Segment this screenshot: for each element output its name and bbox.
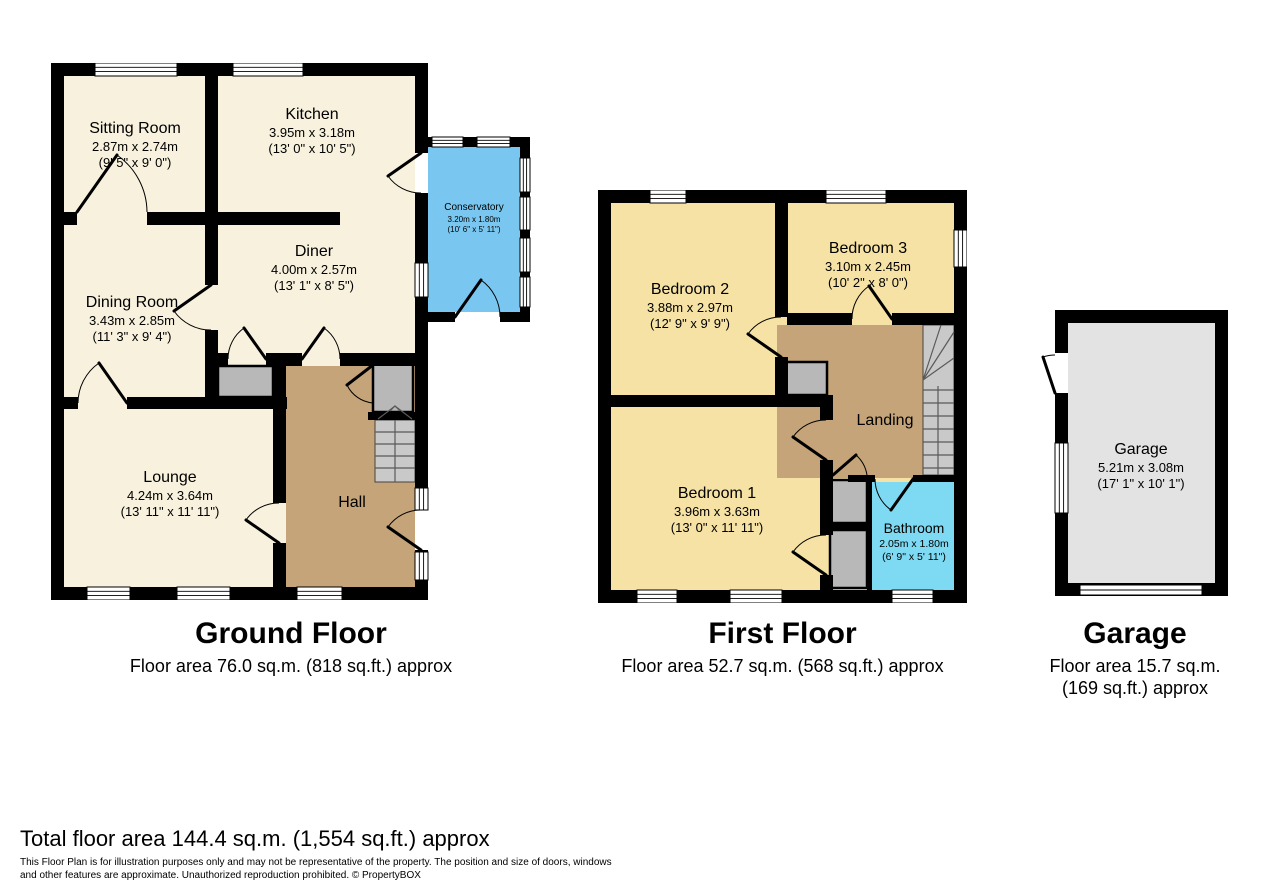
window: [415, 263, 428, 297]
room-dim-metric: 4.00m x 2.57m: [271, 262, 357, 278]
window: [95, 63, 177, 76]
window: [730, 590, 782, 603]
room-dim-imperial: (6' 9" x 5' 11"): [879, 551, 948, 564]
window: [637, 590, 677, 603]
ground-floor-plan: Sitting Room 2.87m x 2.74m (9' 5" x 9' 0…: [51, 63, 531, 600]
disclaimer-line-1: This Floor Plan is for illustration purp…: [20, 856, 612, 869]
room-dim-metric: 4.24m x 3.64m: [121, 488, 220, 504]
room-name: Garage: [1097, 440, 1184, 460]
garage-area-line2: (169 sq.ft.) approx: [1040, 676, 1230, 700]
window: [432, 137, 463, 147]
total-floor-area: Total floor area 144.4 sq.m. (1,554 sq.f…: [20, 826, 490, 852]
room-name: Bedroom 1: [671, 484, 763, 504]
landing-cupboard: [782, 362, 827, 395]
room-name: Lounge: [121, 468, 220, 488]
room-dim-metric: 2.05m x 1.80m: [879, 538, 948, 551]
cupboard-lower: [830, 530, 867, 588]
room-dim-imperial: (12' 9" x 9' 9"): [647, 316, 733, 332]
room-label-garage: Garage 5.21m x 3.08m (17' 1" x 10' 1"): [1097, 440, 1184, 493]
window: [233, 63, 303, 76]
room-name: Bedroom 2: [647, 280, 733, 300]
room-dim-imperial: (13' 0" x 10' 5"): [268, 141, 355, 157]
window: [87, 587, 130, 600]
window: [177, 587, 230, 600]
first-floor-area: Floor area 52.7 sq.m. (568 sq.ft.) appro…: [598, 654, 967, 678]
ground-floor-area: Floor area 76.0 sq.m. (818 sq.ft.) appro…: [51, 654, 531, 678]
room-name: Kitchen: [268, 105, 355, 125]
room-name: Hall: [338, 493, 366, 513]
room-dim-imperial: (10' 6" x 5' 11"): [444, 224, 503, 234]
room-dim-metric: 3.96m x 3.63m: [671, 504, 763, 520]
window: [520, 197, 530, 230]
cupboard-upper: [830, 480, 867, 523]
room-label-conservatory: Conservatory 3.20m x 1.80m (10' 6" x 5' …: [444, 202, 503, 235]
room-dim-imperial: (13' 1" x 8' 5"): [271, 278, 357, 294]
room-dim-imperial: (10' 2" x 8' 0"): [825, 275, 911, 291]
room-dim-imperial: (11' 3" x 9' 4"): [86, 329, 178, 345]
window: [477, 137, 510, 147]
room-label-bedroom-1: Bedroom 1 3.96m x 3.63m (13' 0" x 11' 11…: [671, 484, 763, 537]
ground-floor-title: Ground Floor: [51, 616, 531, 652]
room-name: Conservatory: [444, 202, 503, 215]
room-dim-metric: 3.43m x 2.85m: [86, 313, 178, 329]
room-label-bedroom-2: Bedroom 2 3.88m x 2.97m (12' 9" x 9' 9"): [647, 280, 733, 333]
window: [520, 158, 530, 192]
room-dim-imperial: (13' 11" x 11' 11"): [121, 504, 220, 520]
room-name: Landing: [857, 411, 914, 431]
window: [1055, 443, 1068, 513]
garage-area-line1: Floor area 15.7 sq.m.: [1040, 654, 1230, 678]
room-label-hall: Hall: [338, 493, 366, 513]
room-name: Bedroom 3: [825, 239, 911, 259]
room-dim-imperial: (17' 1" x 10' 1"): [1097, 476, 1184, 492]
window: [297, 587, 342, 600]
disclaimer: This Floor Plan is for illustration purp…: [20, 856, 612, 882]
hall-cupboard: [373, 360, 413, 412]
room-dim-imperial: (9' 5" x 9' 0"): [89, 155, 181, 171]
garage-caption: Garage Floor area 15.7 sq.m. (169 sq.ft.…: [1040, 616, 1230, 700]
pantry-cupboard: [218, 366, 273, 397]
ground-floor-caption: Ground Floor Floor area 76.0 sq.m. (818 …: [51, 616, 531, 678]
room-label-diner: Diner 4.00m x 2.57m (13' 1" x 8' 5"): [271, 242, 357, 295]
room-label-bathroom: Bathroom 2.05m x 1.80m (6' 9" x 5' 11"): [879, 520, 948, 564]
room-name: Bathroom: [879, 520, 948, 538]
room-dim-metric: 3.88m x 2.97m: [647, 300, 733, 316]
room-name: Sitting Room: [89, 119, 181, 139]
floor-plan-page: Sitting Room 2.87m x 2.74m (9' 5" x 9' 0…: [0, 0, 1280, 896]
room-name: Diner: [271, 242, 357, 262]
room-dim-metric: 5.21m x 3.08m: [1097, 460, 1184, 476]
window: [892, 590, 933, 603]
window: [650, 190, 686, 203]
room-dim-imperial: (13' 0" x 11' 11"): [671, 520, 763, 536]
room-label-lounge: Lounge 4.24m x 3.64m (13' 11" x 11' 11"): [121, 468, 220, 521]
first-floor-caption: First Floor Floor area 52.7 sq.m. (568 s…: [598, 616, 967, 678]
room-label-sitting-room: Sitting Room 2.87m x 2.74m (9' 5" x 9' 0…: [89, 119, 181, 172]
garage-doors: [1043, 355, 1055, 393]
window: [415, 488, 428, 510]
window: [826, 190, 886, 203]
room-label-kitchen: Kitchen 3.95m x 3.18m (13' 0" x 10' 5"): [268, 105, 355, 158]
window: [520, 238, 530, 272]
garage-plan: Garage 5.21m x 3.08m (17' 1" x 10' 1"): [1040, 306, 1230, 598]
room-dim-metric: 3.10m x 2.45m: [825, 259, 911, 275]
window: [520, 277, 530, 307]
room-name: Dining Room: [86, 293, 178, 313]
room-label-landing: Landing: [857, 411, 914, 431]
room-label-bedroom-3: Bedroom 3 3.10m x 2.45m (10' 2" x 8' 0"): [825, 239, 911, 292]
disclaimer-line-2: and other features are approximate. Unau…: [20, 869, 612, 882]
first-floor-title: First Floor: [598, 616, 967, 652]
room-dim-metric: 3.20m x 1.80m: [444, 214, 503, 224]
room-dim-metric: 2.87m x 2.74m: [89, 139, 181, 155]
first-floor-plan: Bedroom 2 3.88m x 2.97m (12' 9" x 9' 9")…: [598, 190, 967, 603]
room-dim-metric: 3.95m x 3.18m: [268, 125, 355, 141]
window: [415, 552, 428, 580]
window: [954, 230, 967, 267]
garage-title: Garage: [1040, 616, 1230, 652]
room-label-dining-room: Dining Room 3.43m x 2.85m (11' 3" x 9' 4…: [86, 293, 178, 346]
